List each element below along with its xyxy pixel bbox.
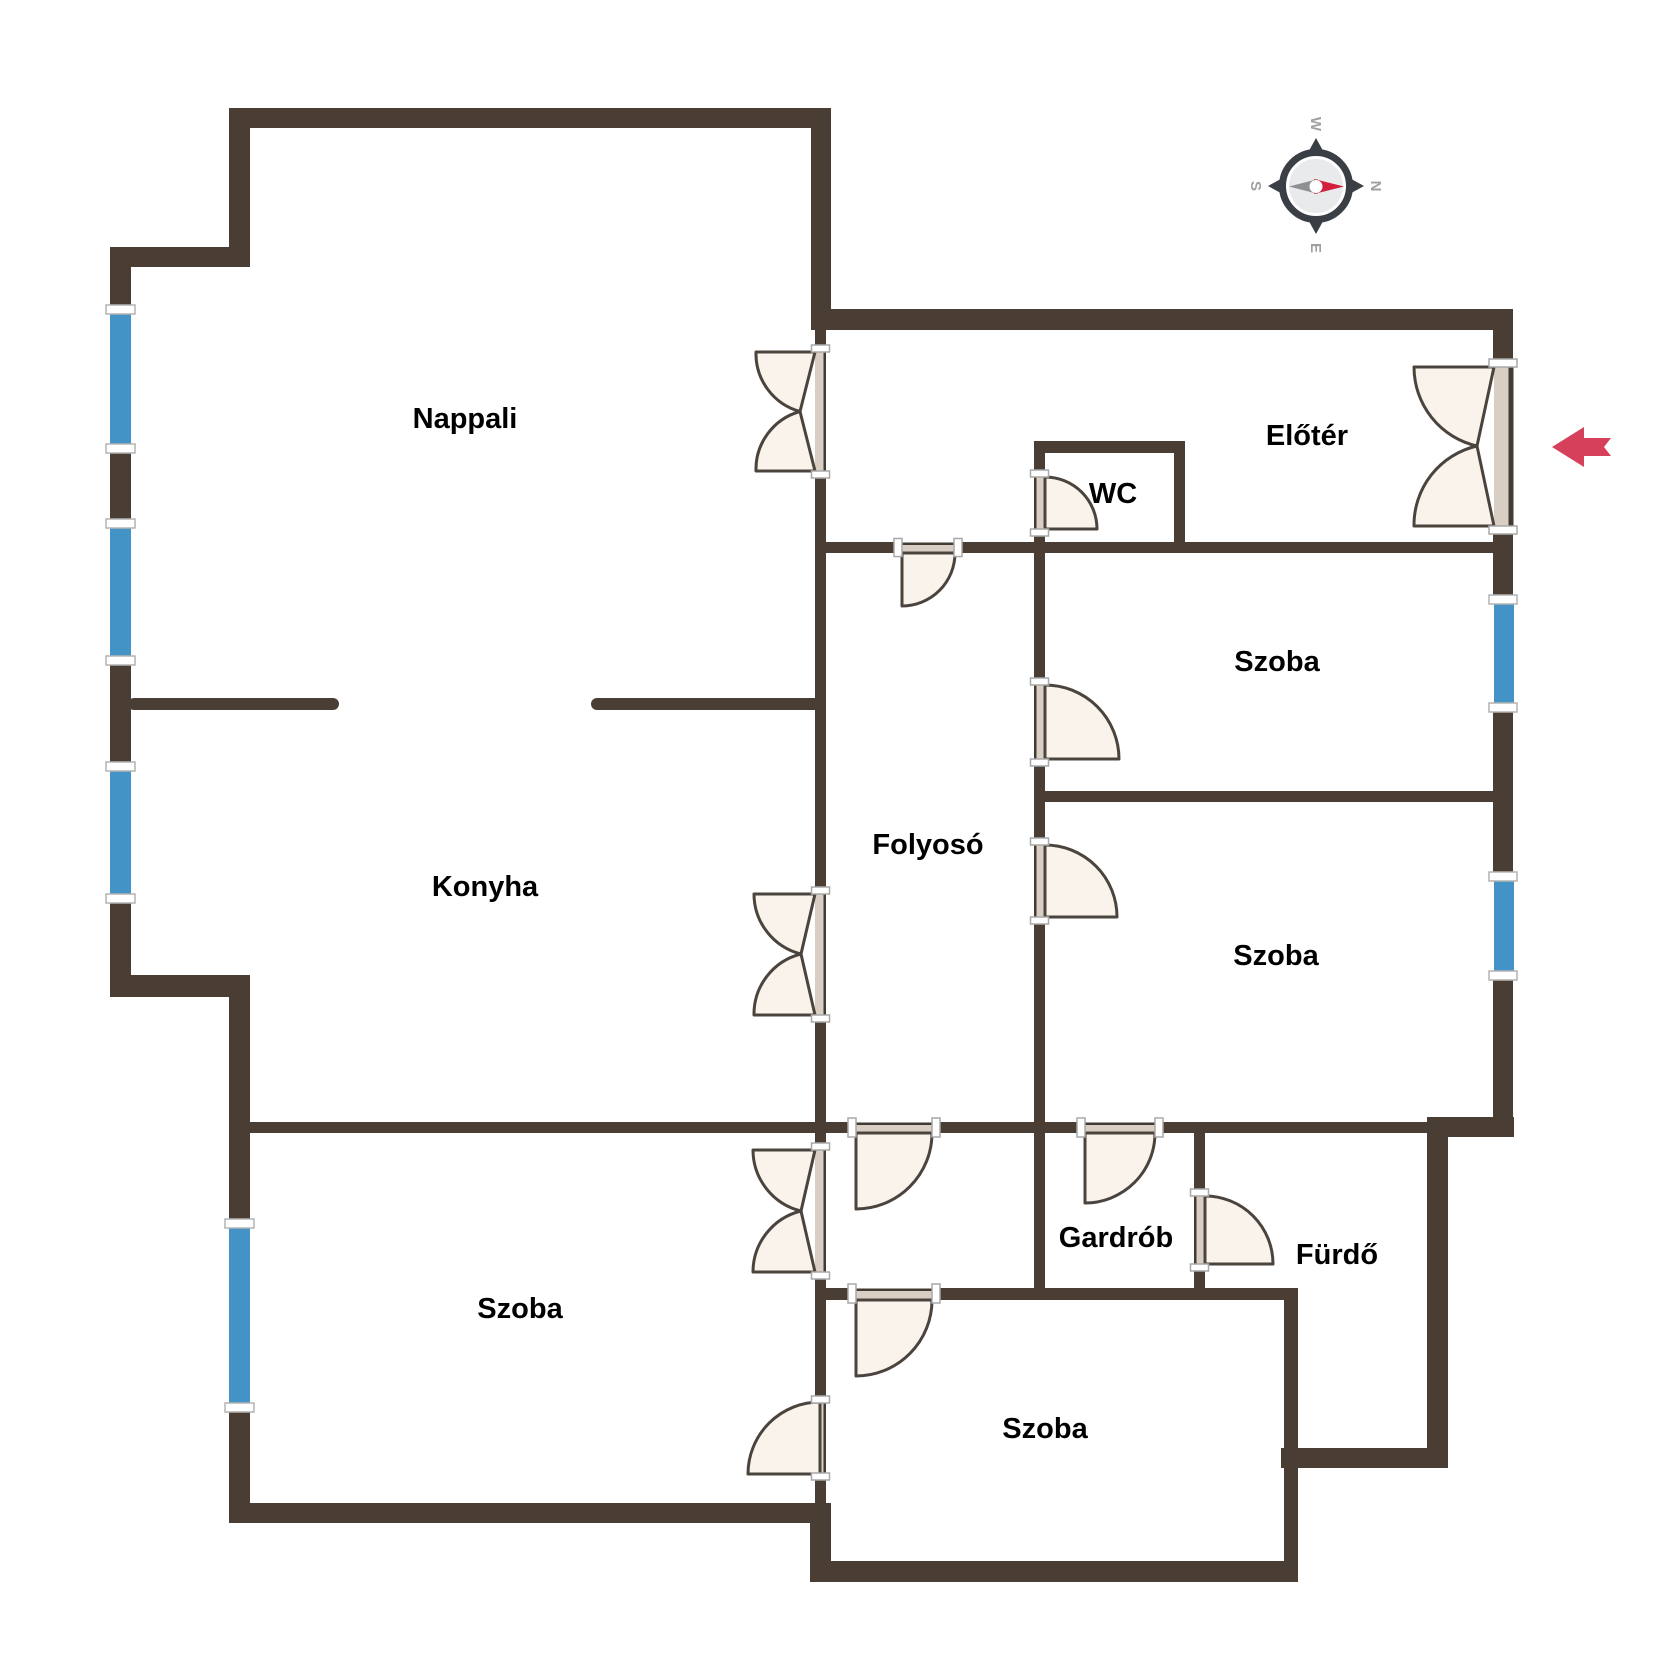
svg-text:Gardrób: Gardrób [1059,1222,1173,1254]
svg-text:Szoba: Szoba [1234,646,1320,678]
svg-text:Nappali: Nappali [413,403,518,435]
svg-text:N: N [1367,181,1384,192]
svg-text:Fürdő: Fürdő [1296,1239,1378,1271]
svg-text:Szoba: Szoba [1002,1413,1088,1445]
svg-text:Folyosó: Folyosó [872,829,983,861]
svg-text:Előtér: Előtér [1266,420,1348,452]
svg-text:S: S [1247,181,1264,191]
svg-text:Konyha: Konyha [432,871,539,903]
svg-text:WC: WC [1089,478,1137,510]
svg-text:Szoba: Szoba [477,1293,563,1325]
svg-text:E: E [1307,243,1324,253]
svg-text:W: W [1307,117,1324,132]
svg-text:Szoba: Szoba [1233,940,1319,972]
